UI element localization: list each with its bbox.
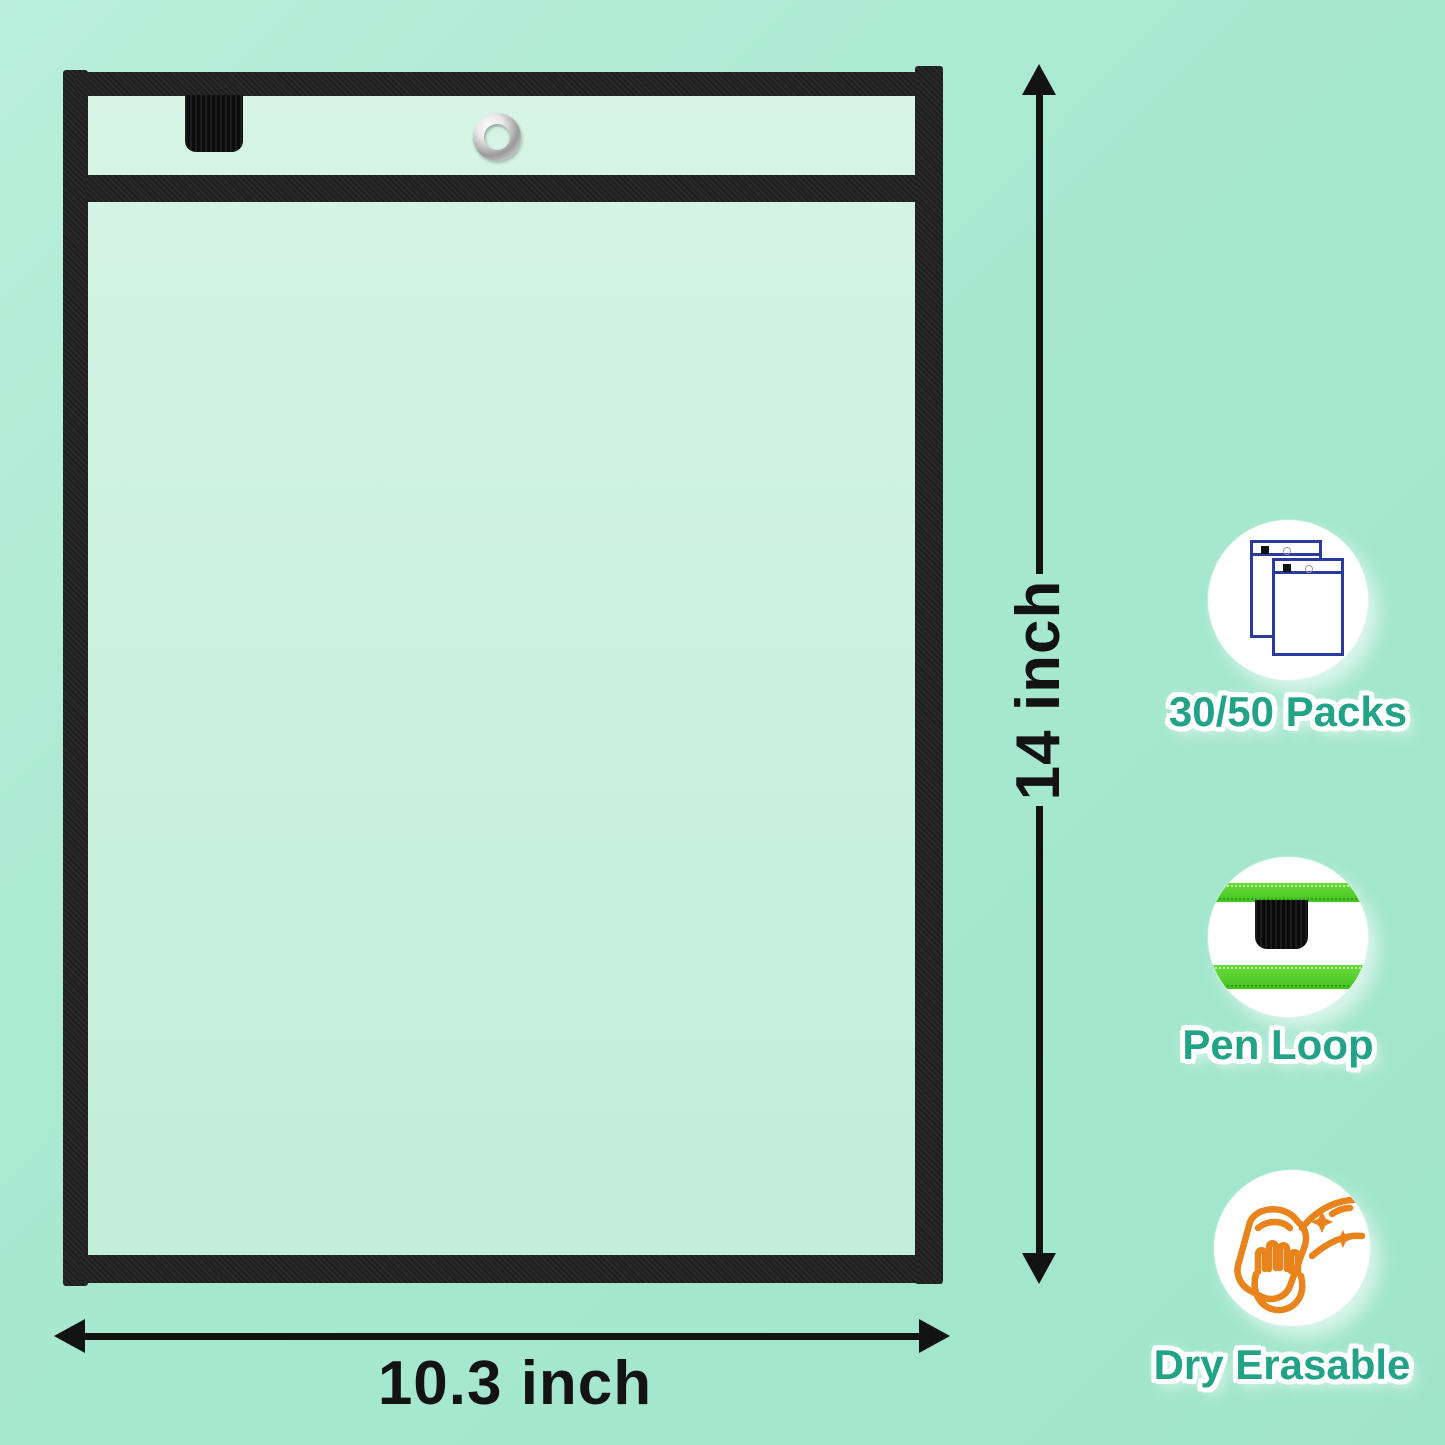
feature-label-dry-erasable: Dry Erasable <box>1132 1341 1432 1389</box>
dry-erasable-icon <box>1214 1170 1370 1326</box>
feature-label-packs: 30/50 Packs <box>1138 688 1438 736</box>
height-dimension-line-top <box>1036 92 1043 574</box>
pocket-clear-window <box>88 95 916 1256</box>
feature-item-dry-erasable <box>1214 1170 1370 1326</box>
arrow-up-icon <box>1022 64 1056 95</box>
hanging-grommet-icon <box>473 113 521 161</box>
arrow-right-icon <box>919 1319 950 1353</box>
height-dimension-line-bottom <box>1036 806 1043 1256</box>
width-dimension-line <box>82 1333 920 1340</box>
feature-item-packs <box>1208 520 1368 680</box>
pocket-frame-right <box>915 66 943 1284</box>
arrow-down-icon <box>1022 1253 1056 1284</box>
pen-loop-tab <box>185 95 243 152</box>
height-dimension-label: 14 inch <box>999 540 1079 840</box>
pocket-frame-left <box>63 70 88 1286</box>
width-dimension-label: 10.3 inch <box>315 1348 715 1419</box>
arrow-left-icon <box>54 1319 85 1353</box>
feature-label-pen-loop: Pen Loop <box>1128 1021 1428 1069</box>
pocket-frame-top <box>76 72 917 96</box>
grommet-hole <box>484 124 510 150</box>
feature-item-pen-loop <box>1208 857 1368 1017</box>
mini-pocket-front <box>1272 558 1344 656</box>
pocket-header-seam <box>86 175 916 202</box>
pocket-frame-bottom <box>80 1255 918 1283</box>
product-image: 14 inch 10.3 inch <box>0 0 1445 1445</box>
